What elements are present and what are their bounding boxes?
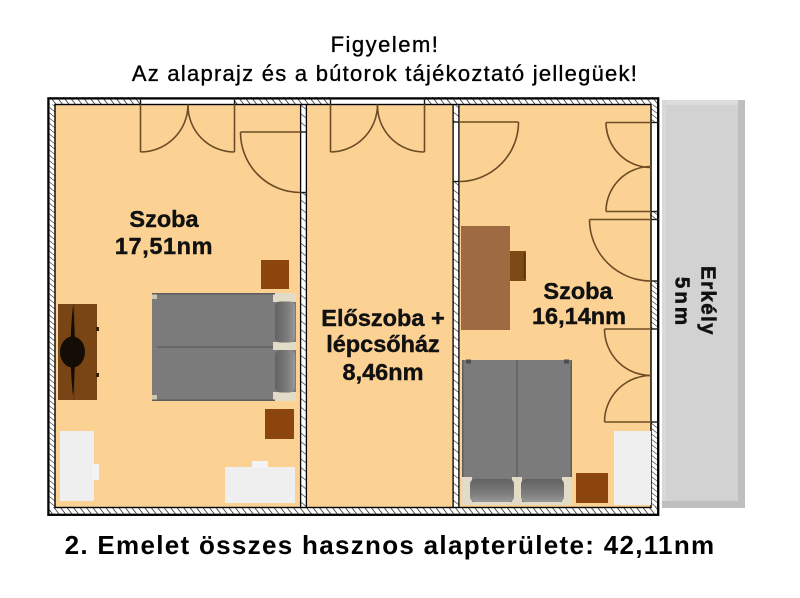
svg-text:17,51nm: 17,51nm bbox=[115, 233, 213, 259]
svg-text:16,14nm: 16,14nm bbox=[532, 303, 626, 329]
svg-text:Előszoba +: Előszoba + bbox=[321, 305, 444, 331]
svg-text:Szoba: Szoba bbox=[543, 278, 613, 304]
svg-text:Az alaprajz és a bútorok tájék: Az alaprajz és a bútorok tájékoztató jel… bbox=[132, 61, 638, 86]
svg-text:8,46nm: 8,46nm bbox=[343, 359, 424, 385]
svg-text:Figyelem!: Figyelem! bbox=[331, 32, 440, 57]
svg-text:lépcsőház: lépcsőház bbox=[326, 331, 440, 357]
svg-text:2. Emelet összes hasznos alapt: 2. Emelet összes hasznos alapterülete: 4… bbox=[65, 530, 716, 560]
svg-text:Szoba: Szoba bbox=[129, 206, 199, 232]
